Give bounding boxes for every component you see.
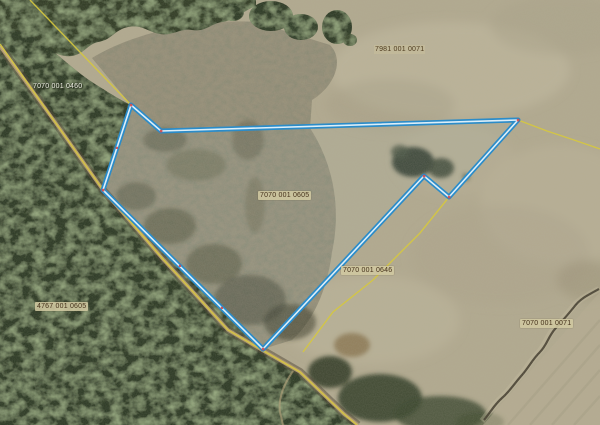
map-canvas[interactable]: 7070 001 0460 7981 001 0071 7070 001 060…: [0, 0, 600, 425]
aerial-imagery: [0, 0, 600, 425]
